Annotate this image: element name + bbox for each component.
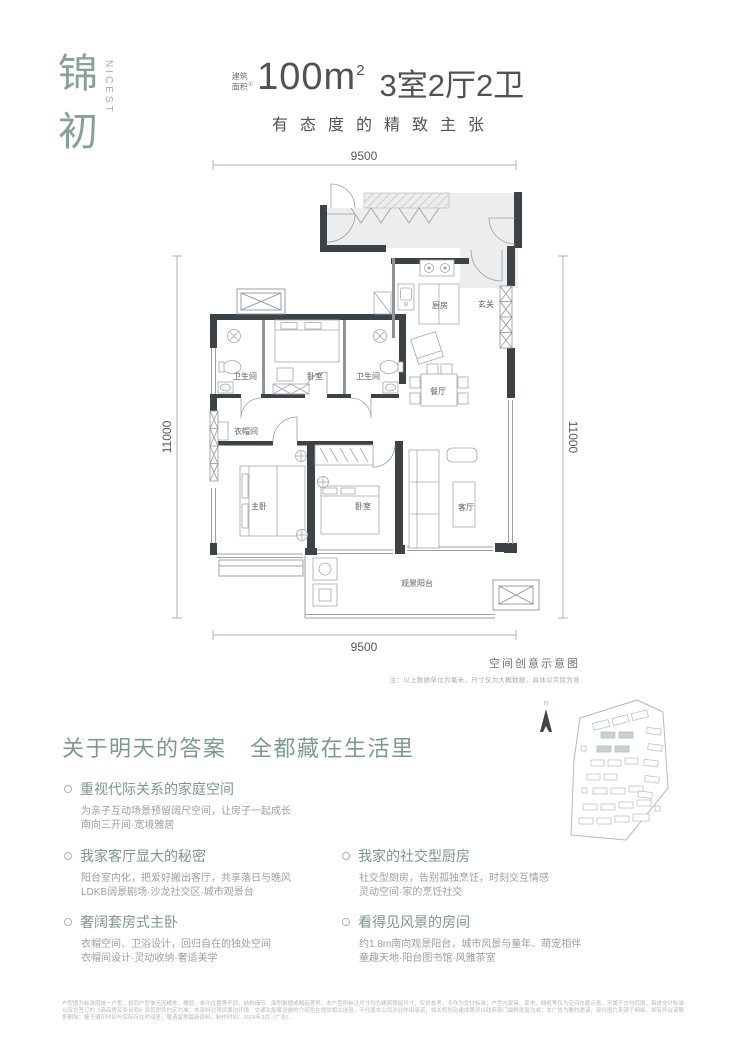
layout-value: 3室2厅2卫 [380,56,525,105]
header: 建筑 面积① 100m2 3室2厅2卫 有态度的精致主张 [158,56,598,135]
feature-body: 约1.8m南向观景阳台，城市风景与童年、萌宠相伴 童趣天地·阳台图书馆·风雅茶室 [359,938,634,966]
feature-social-kitchen: 我家的社交型厨房 社交型厨房，告别孤独烹饪，时刻交互情感 灵动空间·家的烹饪社交 [342,846,634,900]
flyer-page: 锦初 NICEST 建筑 面积① 100m2 3室2厅2卫 有态度的精致主张 [0,0,740,1042]
feature-body: 为亲子互动场景预留阔尺空间，让房子一起成长 南向三开间·宽境雅居 [81,805,356,833]
room-label-dining: 餐厅 [430,387,446,396]
ring-bullet-icon [342,918,350,926]
plan-caption: 空间创意示意图 注：以上数据单位为毫米，尺寸仅为大概数据，具体以实际为准 [390,655,580,684]
room-label-living: 客厅 [458,502,474,512]
brand-name-cn: 锦初 [52,52,96,168]
feature-title: 重视代际关系的家庭空间 [64,779,356,799]
ring-bullet-icon [64,852,72,860]
room-label-bathroom2: 卫生间 [356,371,380,381]
balcony-box [493,580,539,610]
area-footnote-mark: ① [248,82,253,88]
header-main: 建筑 面积① 100m2 3室2厅2卫 [158,56,598,105]
dim-top: 9500 [351,149,378,163]
room-label-cloakroom: 衣帽间 [234,426,258,436]
slogan: 有态度的精致主张 [158,111,598,135]
feature-title: 我家的社交型厨房 [342,846,634,866]
plan-caption-note: 注：以上数据单位为毫米，尺寸仅为大概数据，具体以实际为准 [390,674,580,684]
dim-left: 11000 [160,420,174,453]
feature-view-room: 看得见风景的房间 约1.8m南向观景阳台，城市风景与童年、萌宠相伴 童趣天地·阳… [342,912,634,966]
ring-bullet-icon [64,785,72,793]
feature-family-space: 重视代际关系的家庭空间 为亲子互动场景预留阔尺空间，让房子一起成长 南向三开间·… [64,779,356,833]
area-label: 建筑 面积① [232,56,253,93]
dim-bottom: 9500 [351,640,378,654]
brand-name-latin: NICEST [103,52,114,168]
svg-text:N: N [544,701,548,707]
site-map: N [535,688,690,853]
feature-title: 看得见风景的房间 [342,912,634,932]
elevator-box [237,289,285,314]
floorplan-drawing: 9500 9500 11000 11000 [155,148,587,660]
section-heading: 关于明天的答案 全都藏在生活里 [62,731,415,763]
room-label-balcony: 观景阳台 [401,578,433,588]
ring-bullet-icon [342,852,350,860]
room-label-kitchen: 厨房 [432,300,448,310]
room-label-entry: 玄关 [478,299,494,309]
feature-master-suite: 奢阔套房式主卧 衣帽空间、卫浴设计，回归自在的独处空间 衣帽间设计·灵动收纳·奢… [64,912,356,966]
room-label-bedroom2: 卧室 [355,501,371,511]
room-label-master: 主卧 [251,501,267,511]
north-arrow-icon: N [540,701,552,732]
brand-logo: 锦初 NICEST [52,52,114,168]
feature-body: 社交型厨房，告别孤独烹饪，时刻交互情感 灵动空间·家的烹饪社交 [359,872,634,900]
room-label-bathroom1: 卫生间 [233,371,257,381]
feature-body: 衣帽空间、卫浴设计，回归自在的独处空间 衣帽间设计·灵动收纳·奢适美学 [81,938,356,966]
area-value: 100m2 [257,56,365,99]
ring-bullet-icon [64,918,72,926]
feature-title: 奢阔套房式主卧 [64,912,356,932]
plan-caption-title: 空间创意示意图 [390,655,580,671]
feature-title: 我家客厅显大的秘密 [64,846,356,866]
legal-disclaimer: 户型图为标准层统一户型，相同户型单元因楼栋、楼层、单元位置等不同，结构细节、面积… [62,1001,684,1021]
feature-living-room: 我家客厅显大的秘密 阳台室内化，把爱好搬出客厅，共享落日与晚风 LDKB阔景剧场… [64,846,356,900]
room-label-bedroom-top: 卧室 [307,371,323,381]
dim-right: 11000 [566,421,580,454]
feature-body: 阳台室内化，把爱好搬出客厅，共享落日与晚风 LDKB阔景剧场·沙龙社交区·城市观… [81,872,356,900]
